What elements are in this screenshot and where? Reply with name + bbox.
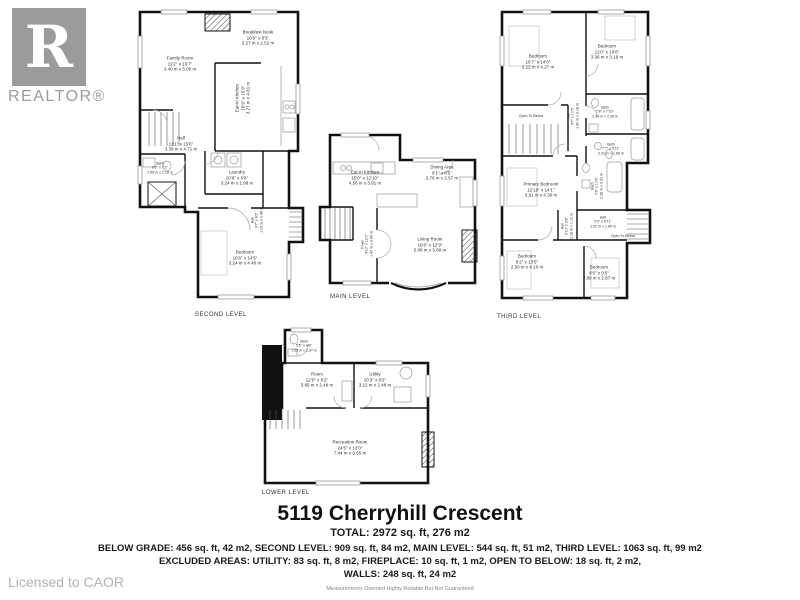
room-label-bath: Bath 6'5" x 7'2" 1.95 m x 2.18 m: [147, 161, 173, 174]
room-label-utility: Utility 10'3" x 8'2" 3.12 m x 2.48 m: [359, 372, 391, 389]
room-label-bedroom: Bedroom 10'8" x 14'5" 3.24 m x 4.40 m: [229, 250, 261, 267]
walls: [320, 135, 475, 283]
floorplan-sheet: R REALTOR®: [0, 0, 800, 600]
room-label-hall-small: Hall 6'10" x 3'8" 2.08 m x 1.12 m: [560, 213, 573, 239]
room-label-open-to-below-small: Open To Below: [611, 234, 635, 238]
floorplan-lower-level: Bath 5'5" x 4'6" 1.65 m x 1.37 m Room 12…: [256, 325, 436, 505]
room-label-laundry: Laundry 10'8" x 6'6" 3.24 m x 1.98 m: [221, 170, 253, 187]
level-label-main: MAIN LEVEL: [330, 294, 370, 300]
room-label-open-to-below: Open To Below: [519, 114, 543, 118]
floorplan-second-level: Breakfast Nook 10'9" x 8'3" 3.27 m x 2.5…: [133, 6, 308, 322]
fireplace-hatch-icon: [422, 432, 434, 467]
windows: [341, 133, 477, 285]
room-label-bath-e: Bath 7'6" x 10'6" 2.28 m x 3.20 m: [590, 173, 603, 199]
room-label-bedroom-sw: Bedroom 8'2" x 13'5" 2.50 m x 4.10 m: [511, 254, 543, 271]
total-area-line: TOTAL: 2972 sq. ft, 276 m2: [0, 527, 800, 539]
lower-level-walls: [256, 325, 436, 505]
fireplace-hatch-icon: [205, 14, 230, 31]
room-label-foyer: Foyer 4'10" x 12'0" 1.47 m x 3.66 m: [360, 231, 373, 257]
room-label-bedroom-se: Bedroom 9'6" x 9'5" 2.88 m x 2.87 m: [583, 265, 615, 282]
main-level-walls: [313, 130, 488, 308]
level-label-second: SECOND LEVEL: [195, 312, 247, 318]
third-level-walls: [483, 6, 658, 326]
room-label-eat-in-kitchen: Eat-in Kitchen 15'0" x 12'10" 4.56 m x 3…: [349, 170, 381, 187]
realtor-logo-icon: R: [12, 8, 86, 86]
realtor-wordmark: REALTOR®: [8, 88, 106, 106]
stairs-icon: [325, 208, 350, 239]
skylight-icon: [148, 182, 176, 206]
bay-window-icon: [389, 279, 448, 290]
level-areas-line: BELOW GRADE: 456 sq. ft, 42 m2, SECOND L…: [0, 543, 800, 554]
room-label-eat-in-kitchen: Eat-in Kitchen 10'9" x 15'9" 3.27 m x 4.…: [235, 82, 252, 114]
room-label-recreation-room: Recreation Room 24'5" x 12'0" 7.44 m x 3…: [333, 440, 368, 457]
room-label-bath: Bath 5'5" x 4'6" 1.65 m x 1.37 m: [291, 339, 317, 352]
room-label-family-room: Family Room 11'2" x 16'7" 3.40 m x 5.06 …: [164, 56, 196, 73]
room-label-bath-ne: Bath 7'8" x 7'10" 2.34 m x 2.39 m: [592, 105, 618, 118]
room-label-bedroom-ne: Bedroom 11'0" x 10'6" 3.36 m x 3.19 m: [591, 44, 623, 61]
licensed-to-text: Licensed to CAOR: [8, 574, 124, 590]
excluded-areas-line: EXCLUDED AREAS: UTILITY: 83 sq. ft, 8 m2…: [0, 556, 800, 567]
room-label-hall: Hall 11'1" x 15'6" 3.39 m x 4.71 m: [165, 136, 197, 153]
room-label-room: Room 12'0" x 8'2" 3.66 m x 2.48 m: [301, 372, 333, 389]
room-label-living-room: Living Room 16'8" x 12'9" 5.08 m x 3.89 …: [414, 237, 446, 254]
room-label-hall-small: Hall 3'7" x 8'2" 1.09 m x 2.48 m: [250, 207, 263, 233]
level-label-third: THIRD LEVEL: [497, 314, 541, 320]
level-label-lower: LOWER LEVEL: [262, 490, 310, 496]
room-label-bedroom-nw: Bedroom 10'7" x 14'0" 3.22 m x 4.27 m: [522, 54, 554, 71]
room-label-bath-se: Bath 7'7" x 5'11" 2.31 m x 1.80 m: [598, 142, 624, 155]
room-label-primary-bedroom: Primary Bedroom 12'10" x 14'1" 3.91 m x …: [524, 182, 559, 199]
walls: [262, 330, 428, 483]
floorplan-main-level: Eat-in Kitchen 15'0" x 12'10" 4.56 m x 3…: [313, 130, 488, 308]
room-label-breakfast-nook: Breakfast Nook 10'9" x 8'3" 3.27 m x 2.5…: [242, 30, 274, 47]
property-address: 5119 Cherryhill Crescent: [0, 502, 800, 526]
room-label-hall-center: Hall 5'0" x 5'11" 1.52 m x 1.80 m: [590, 215, 616, 228]
room-label-dining-area: Dining Area 9'1" x 8'5" 2.76 m x 2.57 m: [426, 165, 458, 182]
fireplace-hatch-icon: [462, 230, 477, 262]
room-label-hall-upper: Hall 4'7" x 10'5" 1.40 m x 3.18 m: [566, 103, 579, 129]
floorplan-third-level: Bedroom 10'7" x 14'0" 3.22 m x 4.27 m Be…: [483, 6, 658, 326]
realtor-logo-letter: R: [25, 18, 73, 76]
